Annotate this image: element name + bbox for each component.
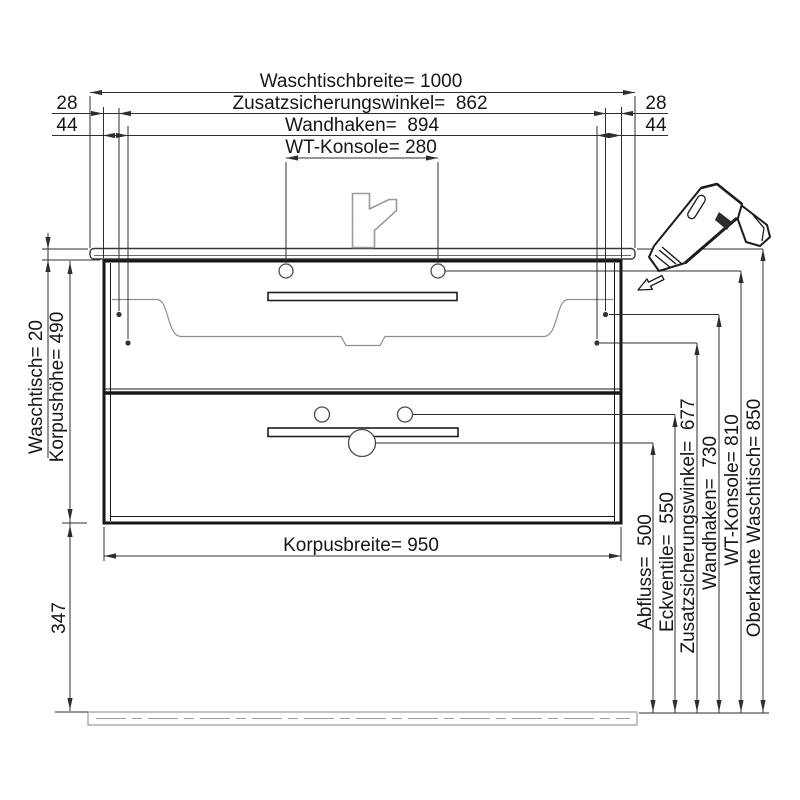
dim-label-zusatzsicherungswinkel-right: Zusatzsicherungswinkel= 677 bbox=[679, 398, 699, 653]
dim-label-wt-konsole-right: WT-Konsole= 810 bbox=[723, 414, 743, 566]
dim-label-abfluss: Abfluss= 500 bbox=[636, 514, 656, 630]
faucet-icon bbox=[353, 194, 397, 248]
dim-label-wandhaken-right: Wandhaken= 730 bbox=[701, 436, 721, 590]
dim-label-wt-konsole-top: WT-Konsole= 280 bbox=[285, 138, 437, 158]
top-drawer-handle bbox=[268, 293, 457, 301]
drill-icon bbox=[649, 184, 770, 271]
washbasin-countertop bbox=[90, 249, 635, 260]
dim-label-347: 347 bbox=[50, 602, 70, 634]
dim-label-korpusbreite: Korpusbreite= 950 bbox=[283, 536, 439, 556]
eckventil-hole-right bbox=[398, 407, 413, 422]
eckventil-hole-left bbox=[315, 407, 330, 422]
floor-slab bbox=[88, 712, 637, 725]
dim-label-waschtischbreite: Waschtischbreite= 1000 bbox=[260, 72, 463, 92]
dim-label-offset-28-left: 28 bbox=[56, 94, 77, 114]
dim-label-offset-44-left: 44 bbox=[56, 116, 77, 136]
dim-label-wandhaken-top: Wandhaken= 894 bbox=[285, 116, 439, 136]
drawing-canvas: Waschtischbreite= 1000 Zusatzsicherungsw… bbox=[0, 0, 800, 800]
arrow-down-left-icon bbox=[638, 276, 664, 291]
dim-label-waschtisch-thickness: Waschtisch= 20 bbox=[27, 320, 47, 454]
dim-label-eckventile: Eckventile= 550 bbox=[658, 492, 678, 632]
dim-label-oberkante-waschtisch: Oberkante Waschtisch= 850 bbox=[745, 399, 765, 638]
dim-label-zusatzsicherungswinkel-top: Zusatzsicherungswinkel= 862 bbox=[232, 94, 487, 114]
dim-label-korpushoehe: Korpushöhe= 490 bbox=[48, 312, 68, 463]
abfluss-hole bbox=[349, 430, 376, 457]
dim-label-offset-44-right: 44 bbox=[645, 116, 666, 136]
dim-label-offset-28-right: 28 bbox=[645, 94, 666, 114]
